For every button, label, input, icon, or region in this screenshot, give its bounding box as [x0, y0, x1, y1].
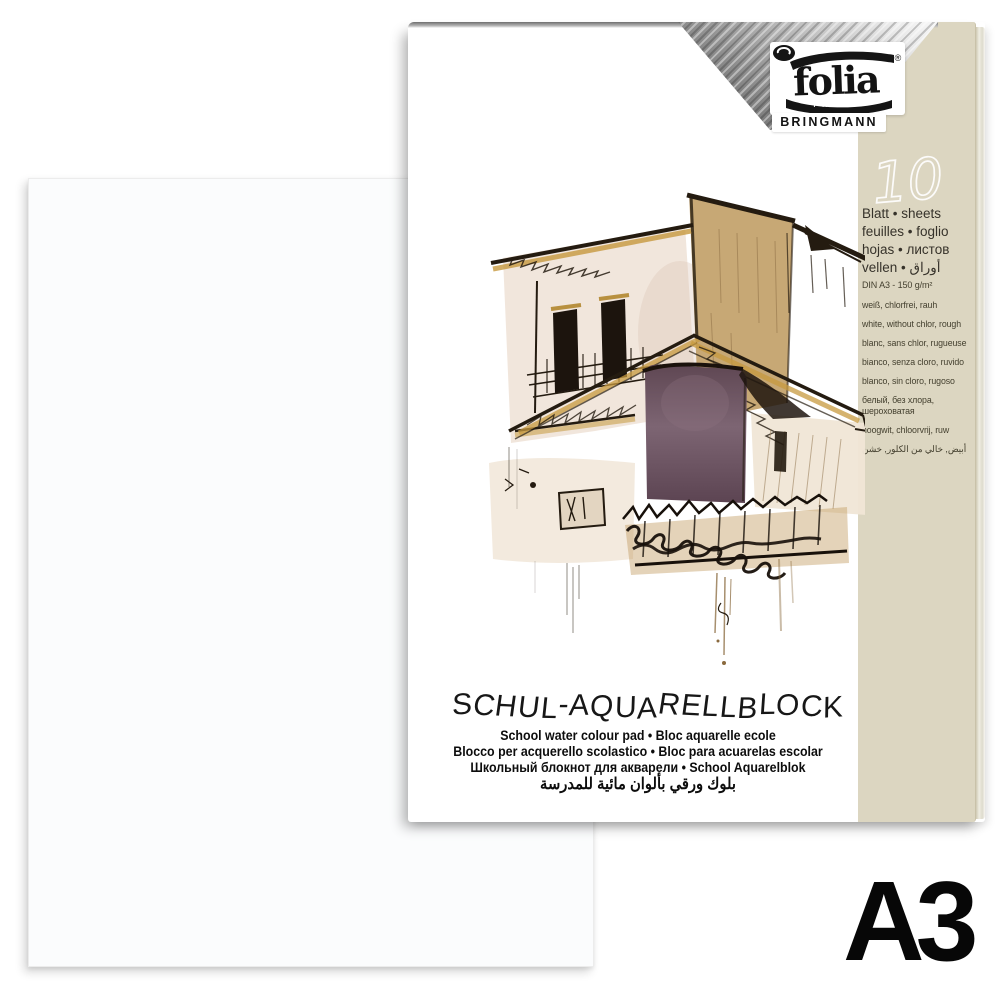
spec-line: белый, без хлора, шероховатая [862, 395, 974, 416]
registered-mark: ® [895, 53, 902, 63]
spec-line: أبيض, خالي من الكلور, خشن [862, 444, 974, 455]
sheet-count-labels: Blatt • sheetsfeuilles • fogliohojas • л… [862, 205, 972, 277]
spec-line: bianco, senza cloro, ruvido [862, 357, 974, 368]
spec-line: hoogwit, chloorvrij, ruw [862, 425, 974, 436]
count-line: hojas • листов [862, 241, 972, 259]
spec-line: blanc, sans chlor, rugueuse [862, 338, 974, 349]
subtitle-line: Школьный блокнот для акварели • School A… [431, 760, 845, 776]
subtitle-line: Blocco per acquerello scolastico • Bloc … [431, 744, 845, 760]
paper-sub-label: PAPER [814, 102, 861, 109]
subtitle-line: School water colour pad • Bloc aquarelle… [431, 728, 845, 744]
brand-wordmark: folia [792, 56, 880, 104]
product-title: SCHUL-AQUARELLBLOCK [437, 690, 860, 724]
spec-line: blanco, sin cloro, rugoso [862, 376, 974, 387]
count-line: Blatt • sheets [862, 205, 972, 223]
count-line: feuilles • foglio [862, 223, 972, 241]
pad-cover: 10 Blatt • sheetsfeuilles • fogliohojas … [408, 22, 985, 822]
beige-info-panel: 10 Blatt • sheetsfeuilles • fogliohojas … [858, 22, 976, 822]
bringmann-label: BRINGMANN [772, 113, 886, 132]
pad-page-edge [976, 27, 985, 819]
count-line: vellen • أوراق [862, 259, 972, 277]
watercolor-house-illustration [475, 163, 865, 693]
subtitle-line: بلوك ورقي بألوان مائية للمدرسة [431, 776, 845, 794]
product-photo: { "product": { "brand": { "name": "folia… [0, 0, 1000, 1000]
spec-format: DIN A3 - 150 g/m² [862, 280, 972, 290]
folia-logo: folia PAPER ® [770, 42, 905, 115]
spec-line: white, without chlor, rough [862, 319, 974, 330]
folia-logo-art: folia PAPER ® [770, 42, 905, 115]
spec-lines: weiß, chlorfrei, rauhwhite, without chlo… [862, 300, 974, 463]
format-badge-a3: A3 [843, 870, 993, 972]
sheet-count: 10 [858, 154, 962, 212]
sheet-count-number: 10 [869, 154, 946, 212]
spec-line: weiß, chlorfrei, rauh [862, 300, 974, 311]
product-subtitles: School water colour pad • Bloc aquarelle… [431, 728, 845, 794]
